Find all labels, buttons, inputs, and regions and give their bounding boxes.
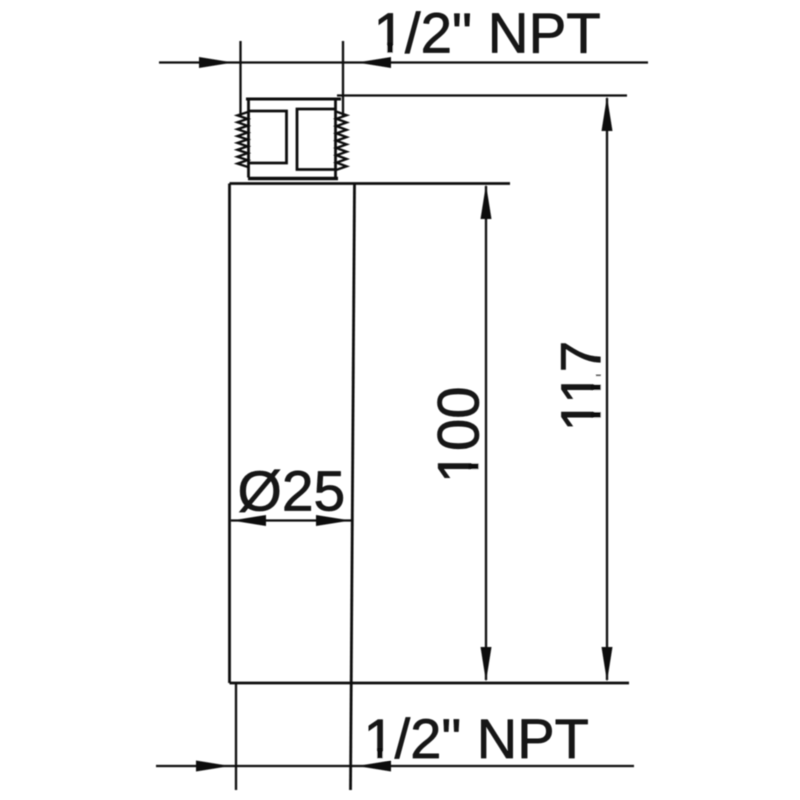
svg-text:1/2" NPT: 1/2" NPT	[374, 1, 601, 64]
svg-text:117: 117	[550, 341, 614, 432]
svg-text:1/2" NPT: 1/2" NPT	[364, 707, 589, 770]
svg-text:100: 100	[426, 387, 491, 484]
svg-text:Ø25: Ø25	[238, 460, 346, 524]
